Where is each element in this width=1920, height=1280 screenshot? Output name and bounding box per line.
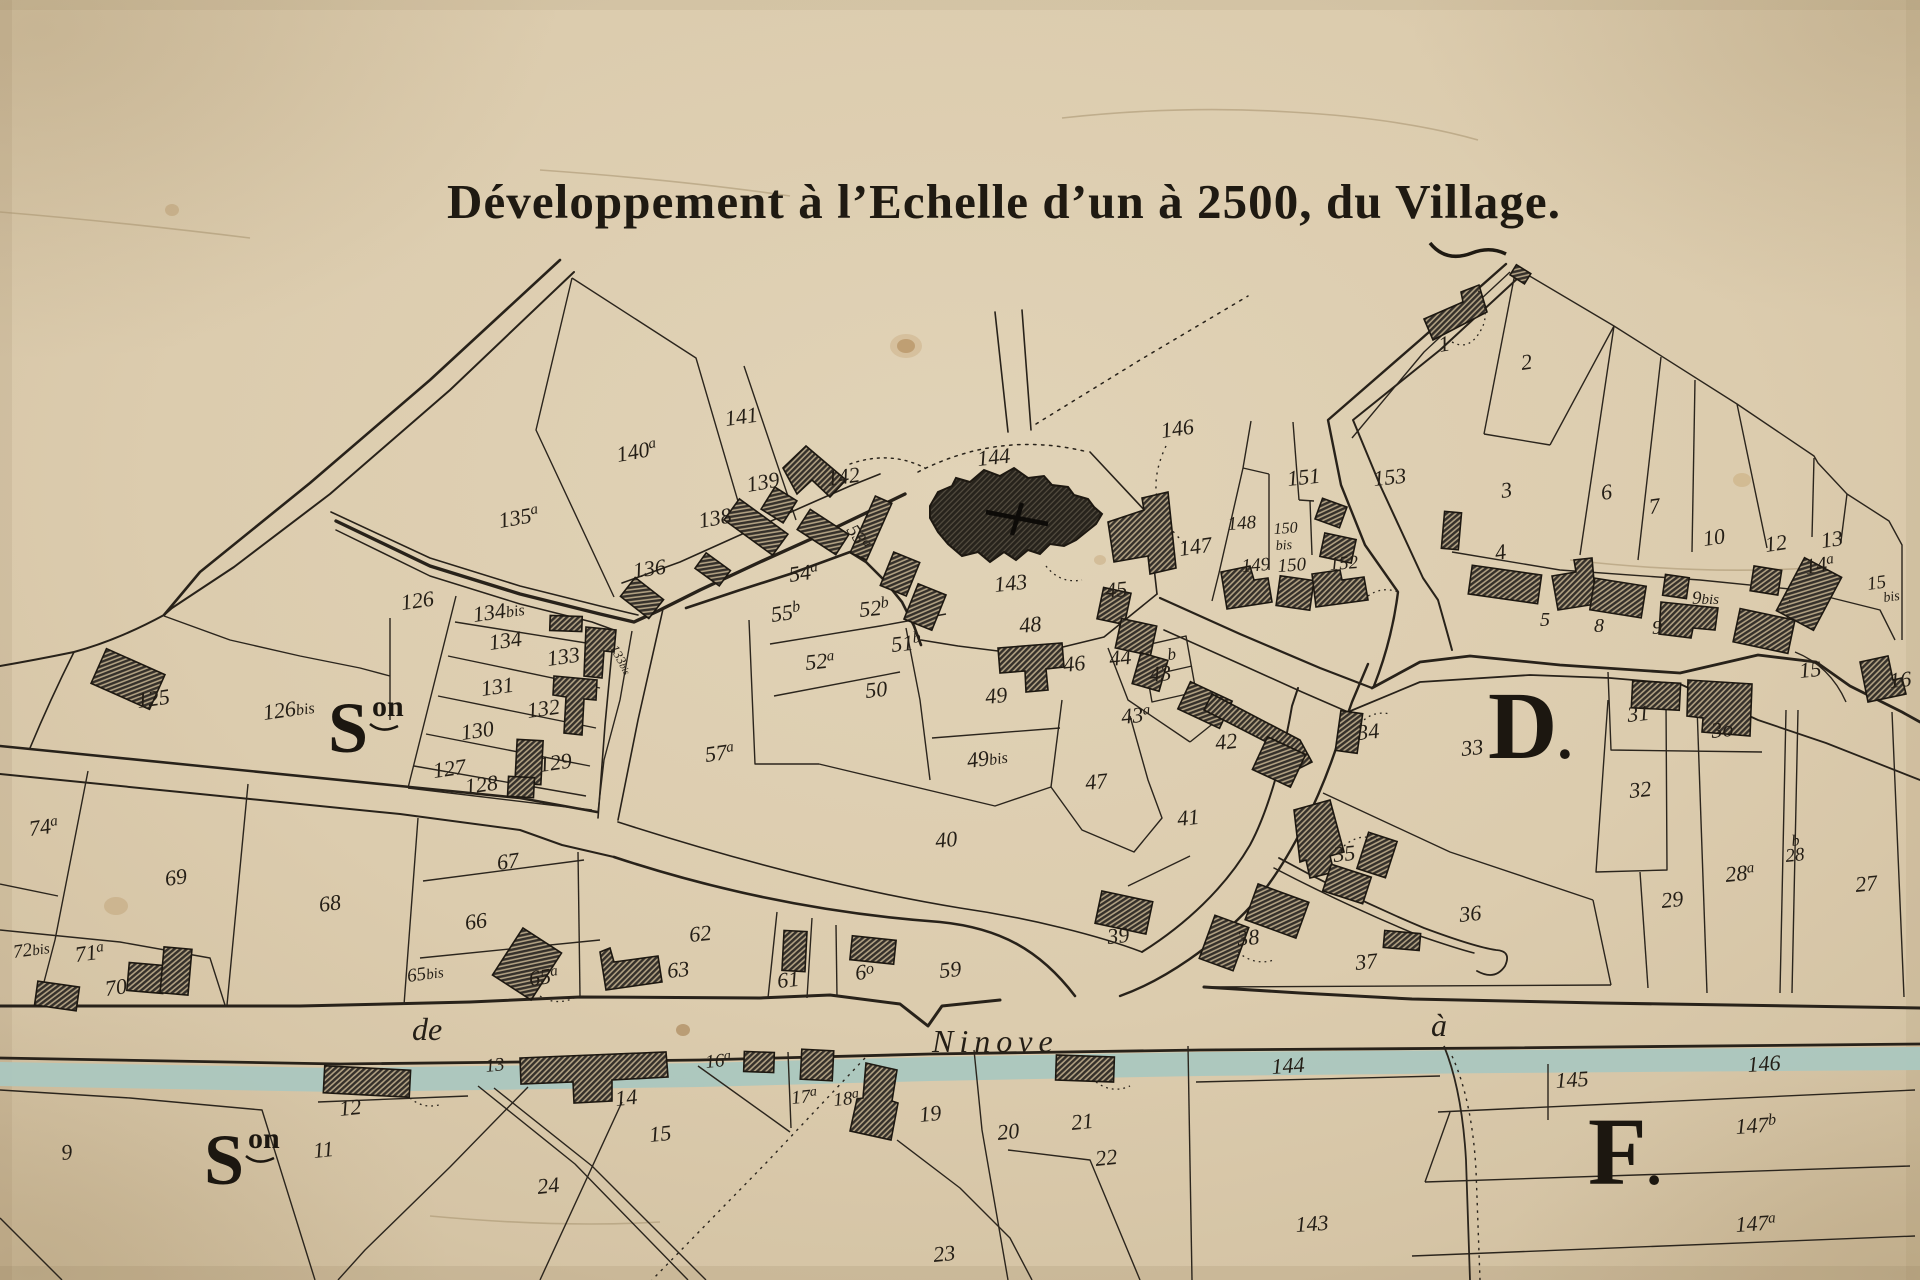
svg-text:37: 37 xyxy=(1353,948,1379,975)
svg-text:Développement à l’Echelle d: Développement à l’Echelle d’un à 2500, d… xyxy=(447,174,1560,229)
svg-text:41: 41 xyxy=(1176,804,1200,831)
svg-text:132: 132 xyxy=(525,694,561,723)
svg-text:12: 12 xyxy=(338,1094,362,1121)
svg-text:38: 38 xyxy=(1235,924,1260,951)
svg-text:142: 142 xyxy=(825,462,861,491)
svg-text:19: 19 xyxy=(918,1100,942,1127)
svg-text:134: 134 xyxy=(487,626,523,655)
svg-text:39: 39 xyxy=(1105,922,1130,949)
svg-text:on: on xyxy=(248,1122,280,1155)
svg-text:47: 47 xyxy=(1084,768,1109,795)
svg-text:148: 148 xyxy=(1227,512,1257,535)
svg-text:59: 59 xyxy=(938,956,962,983)
svg-text:126: 126 xyxy=(399,586,435,615)
svg-text:70: 70 xyxy=(103,973,128,1001)
svg-text:49: 49 xyxy=(984,682,1008,709)
svg-text:69: 69 xyxy=(163,863,188,891)
svg-text:147: 147 xyxy=(1177,531,1214,560)
svg-text:bis: bis xyxy=(1275,538,1293,554)
svg-text:150: 150 xyxy=(1273,519,1298,538)
svg-text:S: S xyxy=(328,688,368,768)
svg-text:131: 131 xyxy=(479,672,515,701)
svg-text:31: 31 xyxy=(1625,700,1650,727)
svg-text:45: 45 xyxy=(1104,576,1128,603)
svg-text:32: 32 xyxy=(1627,776,1652,803)
svg-text:21: 21 xyxy=(1070,1108,1094,1135)
svg-text:28: 28 xyxy=(1784,844,1806,867)
svg-text:127: 127 xyxy=(431,753,468,782)
svg-text:15: 15 xyxy=(648,1120,672,1147)
svg-text:on: on xyxy=(372,690,404,723)
svg-text:à: à xyxy=(1431,1007,1447,1043)
svg-text:13: 13 xyxy=(484,1054,505,1077)
svg-text:13: 13 xyxy=(1819,525,1844,553)
svg-text:136: 136 xyxy=(631,554,667,583)
svg-text:S: S xyxy=(204,1120,244,1200)
svg-text:50: 50 xyxy=(864,676,888,703)
svg-text:143: 143 xyxy=(993,569,1028,597)
svg-text:130: 130 xyxy=(459,716,495,745)
svg-text:125: 125 xyxy=(135,684,171,713)
svg-text:43: 43 xyxy=(1148,660,1172,687)
svg-text:145: 145 xyxy=(1555,1066,1590,1093)
svg-text:67: 67 xyxy=(495,847,521,875)
svg-text:Ninove: Ninove xyxy=(931,1023,1059,1059)
svg-text:146: 146 xyxy=(1747,1050,1782,1077)
svg-text:36: 36 xyxy=(1457,900,1482,927)
svg-text:146: 146 xyxy=(1159,414,1195,443)
svg-text:12: 12 xyxy=(1763,529,1788,557)
svg-text:42: 42 xyxy=(1214,728,1238,755)
svg-text:bis: bis xyxy=(1882,589,1901,606)
svg-text:15: 15 xyxy=(1798,656,1822,683)
svg-text:29: 29 xyxy=(1660,886,1684,913)
svg-text:10: 10 xyxy=(1701,523,1726,551)
svg-text:8: 8 xyxy=(1594,615,1604,637)
svg-text:133: 133 xyxy=(545,642,581,671)
svg-text:9: 9 xyxy=(1652,617,1662,639)
svg-text:20: 20 xyxy=(996,1118,1020,1145)
svg-text:68: 68 xyxy=(317,889,342,917)
svg-text:152: 152 xyxy=(1329,552,1359,575)
svg-text:5: 5 xyxy=(1540,609,1550,631)
svg-text:44: 44 xyxy=(1108,644,1132,671)
svg-text:9bis: 9bis xyxy=(1692,588,1719,609)
svg-text:3o: 3o xyxy=(1709,716,1734,743)
svg-text:141: 141 xyxy=(723,402,759,431)
svg-text:24: 24 xyxy=(536,1172,560,1199)
svg-text:40: 40 xyxy=(934,826,958,853)
svg-text:153: 153 xyxy=(1372,463,1407,491)
svg-text:14: 14 xyxy=(614,1084,638,1111)
svg-text:144: 144 xyxy=(976,443,1011,471)
svg-text:66: 66 xyxy=(463,907,488,935)
svg-text:128: 128 xyxy=(463,770,499,799)
svg-text:46: 46 xyxy=(1062,650,1086,677)
svg-text:63: 63 xyxy=(666,956,690,983)
svg-text:34: 34 xyxy=(1355,718,1380,745)
svg-text:144: 144 xyxy=(1271,1052,1306,1079)
svg-text:35: 35 xyxy=(1331,840,1356,867)
svg-text:151: 151 xyxy=(1286,463,1321,491)
svg-text:27: 27 xyxy=(1854,870,1879,897)
svg-text:143: 143 xyxy=(1295,1210,1330,1237)
svg-text:62: 62 xyxy=(688,920,712,947)
svg-text:23: 23 xyxy=(932,1240,956,1267)
svg-text:22: 22 xyxy=(1094,1144,1118,1171)
svg-text:11: 11 xyxy=(312,1136,335,1163)
svg-text:33: 33 xyxy=(1459,734,1484,761)
svg-text:150: 150 xyxy=(1277,554,1307,577)
svg-text:de: de xyxy=(412,1011,442,1047)
svg-text:48: 48 xyxy=(1018,611,1042,638)
svg-text:61: 61 xyxy=(776,966,800,993)
svg-text:149: 149 xyxy=(1241,554,1271,577)
svg-text:16: 16 xyxy=(1888,666,1912,693)
svg-text:129: 129 xyxy=(537,748,573,777)
